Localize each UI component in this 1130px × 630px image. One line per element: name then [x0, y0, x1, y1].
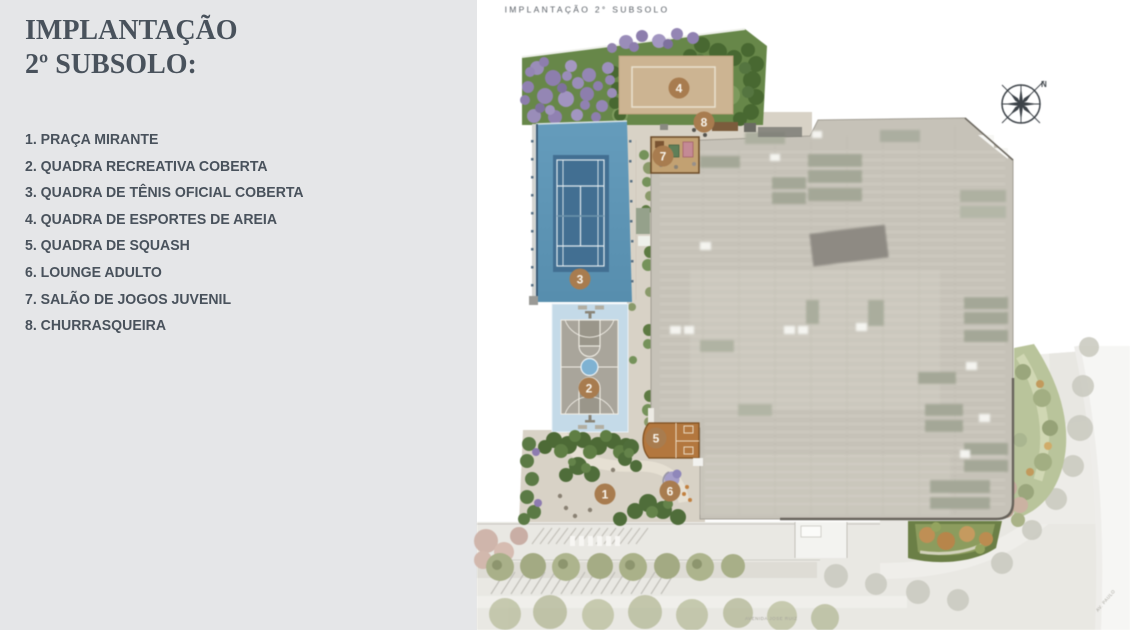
svg-text:IMPLANTAÇÃO 2° SUBSOLO: IMPLANTAÇÃO 2° SUBSOLO — [505, 5, 670, 15]
svg-text:N: N — [1041, 80, 1047, 89]
svg-text:2: 2 — [586, 382, 593, 396]
svg-text:AVENIDA JOSE RUIZ: AVENIDA JOSE RUIZ — [745, 616, 797, 621]
svg-text:7: 7 — [660, 150, 667, 164]
svg-text:8: 8 — [701, 116, 708, 130]
svg-text:5: 5 — [653, 432, 660, 446]
svg-text:4: 4 — [676, 82, 683, 96]
svg-text:6: 6 — [667, 485, 674, 499]
svg-text:3: 3 — [577, 273, 584, 287]
svg-text:1: 1 — [602, 488, 609, 502]
